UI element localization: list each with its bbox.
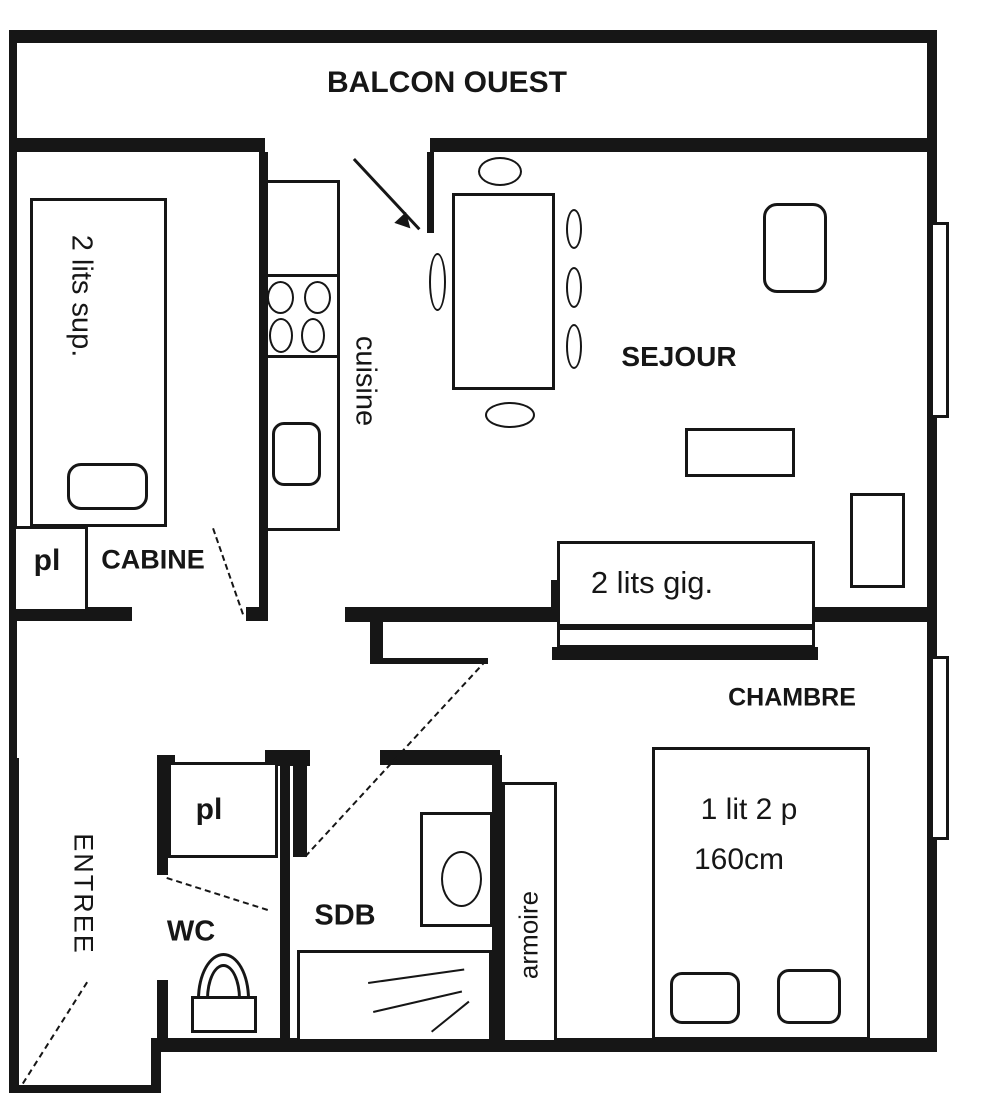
chair-right-2 (566, 267, 582, 308)
stove-burner-1 (267, 281, 294, 314)
armchair (763, 203, 827, 293)
wall-right (927, 30, 937, 1048)
label-wardrobe: armoire (514, 891, 545, 979)
dining-table (452, 193, 555, 390)
window-bedroom (930, 656, 949, 840)
label-nesting-beds: 2 lits gig. (591, 565, 713, 601)
wall-wc-left-upper (157, 758, 168, 875)
double-bed-pillow-right (777, 969, 841, 1024)
chair-right-3 (566, 324, 582, 369)
stove-burner-3 (269, 318, 293, 353)
door-leaf-balcony (427, 152, 434, 233)
door-swing-cabin (212, 528, 244, 615)
wall-sanitary-top-right (380, 750, 500, 765)
wall-bathroom-right (492, 755, 502, 1045)
wall-top (9, 30, 935, 43)
label-cabin-room: CABINE (101, 545, 205, 576)
stove-burner-2 (304, 281, 331, 314)
label-living-room: SEJOUR (621, 341, 736, 373)
wall-left-lower (9, 758, 19, 1092)
balcony-rail-right (430, 138, 935, 152)
wall-bathroom-left-stub (293, 762, 307, 857)
label-toilet-room: WC (167, 916, 215, 949)
door-leaf-corridor (381, 658, 488, 664)
washbasin-bowl (441, 851, 482, 907)
stove-burner-4 (301, 318, 325, 353)
label-entry-hall: ENTREE (68, 833, 99, 955)
door-swing-entry (22, 982, 88, 1084)
floor-plan: BALCON OUEST SEJOUR CABINE CHAMBRE WC SD… (0, 0, 1000, 1107)
wall-under-nesting-beds (552, 647, 818, 660)
double-bed-pillow-left (670, 972, 740, 1024)
label-kitchen: cuisine (349, 336, 382, 426)
balcony-rail-left (9, 138, 265, 152)
wall-wc-right (280, 758, 290, 1045)
label-bedroom: CHAMBRE (728, 684, 856, 713)
label-bunk-beds: 2 lits sup. (65, 235, 98, 358)
chair-bottom (485, 402, 535, 428)
nesting-beds-base (557, 627, 815, 648)
chair-left (429, 253, 446, 311)
kitchen-counter-divider-top (265, 274, 340, 277)
wall-jog (370, 612, 383, 664)
wall-bedroom-living (813, 607, 933, 622)
chair-top (478, 157, 522, 186)
label-double-bed-size: 1 lit 2 p (701, 793, 798, 827)
label-balcony: BALCON OUEST (327, 66, 567, 100)
bathtub (297, 950, 492, 1042)
kitchen-counter-divider-bottom (265, 355, 340, 358)
toilet-tank (191, 996, 257, 1033)
door-swing-wc (166, 877, 268, 911)
label-closet-cabin: pl (34, 544, 61, 578)
window-living (930, 222, 949, 418)
wall-bottom-step (151, 1038, 161, 1092)
closet-hall-box (168, 762, 278, 858)
label-closet-hall: pl (196, 793, 223, 827)
wall-wc-left-lower (157, 980, 168, 1042)
kitchen-sink (272, 422, 321, 486)
label-bathroom: SDB (314, 900, 375, 933)
label-double-bed-width: 160cm (694, 843, 784, 877)
tv-stand (685, 428, 795, 477)
side-table (850, 493, 905, 588)
door-swing-arrow (394, 212, 416, 234)
wall-kitchen-stub (246, 607, 268, 621)
bunk-bed-pillow (67, 463, 148, 510)
chair-right-1 (566, 209, 582, 249)
wall-bottom-entry (9, 1085, 161, 1093)
